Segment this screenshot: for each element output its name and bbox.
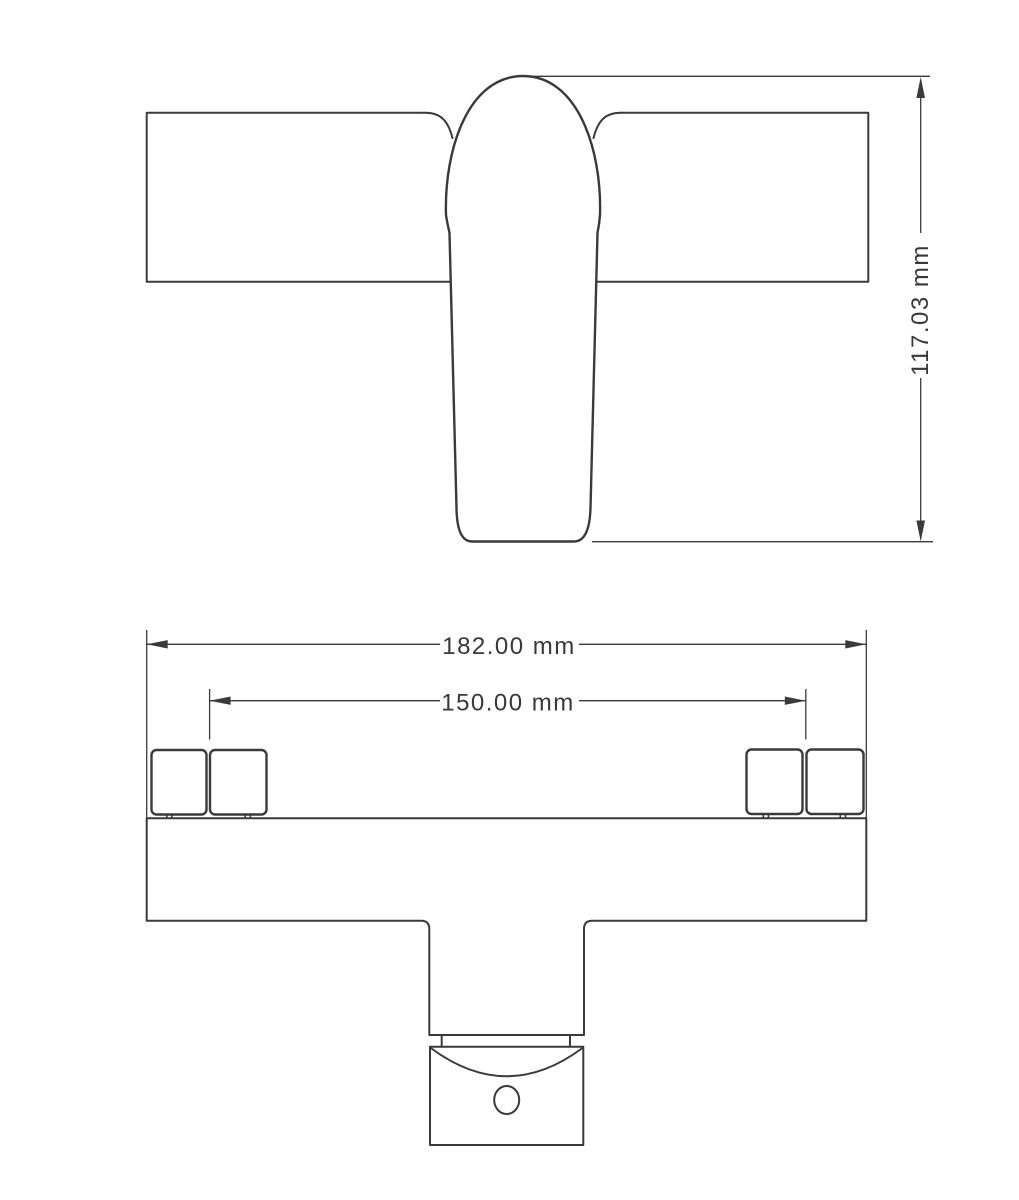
top-view bbox=[147, 76, 869, 542]
dimension-overall-width: 182.00 mm bbox=[147, 630, 867, 818]
dimension-label-inlet-spacing: 150.00 mm bbox=[441, 690, 575, 717]
arrowhead-down bbox=[916, 521, 925, 542]
arrowhead-left bbox=[147, 640, 168, 648]
handle-fillet-left bbox=[424, 113, 453, 138]
inlet-block-left-b bbox=[210, 750, 267, 815]
arrowhead-up bbox=[916, 77, 925, 98]
handle-fillet-right bbox=[594, 113, 623, 138]
arrowhead-left bbox=[210, 697, 231, 705]
faucet-technical-drawing: 117.03 mm 182.00 mm 150.00 mm bbox=[0, 0, 1019, 1200]
front-view-body-outline bbox=[147, 818, 867, 1035]
dimension-label-overall-width: 182.00 mm bbox=[442, 633, 576, 660]
aerator-hole bbox=[494, 1086, 519, 1114]
inlet-block-left-a bbox=[152, 750, 207, 815]
arrowhead-right bbox=[845, 640, 866, 648]
handle-outline bbox=[446, 76, 600, 542]
inlet-block-right-a bbox=[747, 750, 803, 815]
spout-underside-arc bbox=[432, 1049, 582, 1077]
arrowhead-right bbox=[785, 697, 806, 705]
technical-drawing-page: 117.03 mm 182.00 mm 150.00 mm bbox=[0, 0, 1019, 1200]
inlet-block-right-b bbox=[807, 750, 864, 815]
front-view bbox=[147, 750, 867, 1146]
dimension-label-overall-height: 117.03 mm bbox=[907, 244, 934, 376]
dimension-inlet-spacing: 150.00 mm bbox=[210, 689, 806, 740]
